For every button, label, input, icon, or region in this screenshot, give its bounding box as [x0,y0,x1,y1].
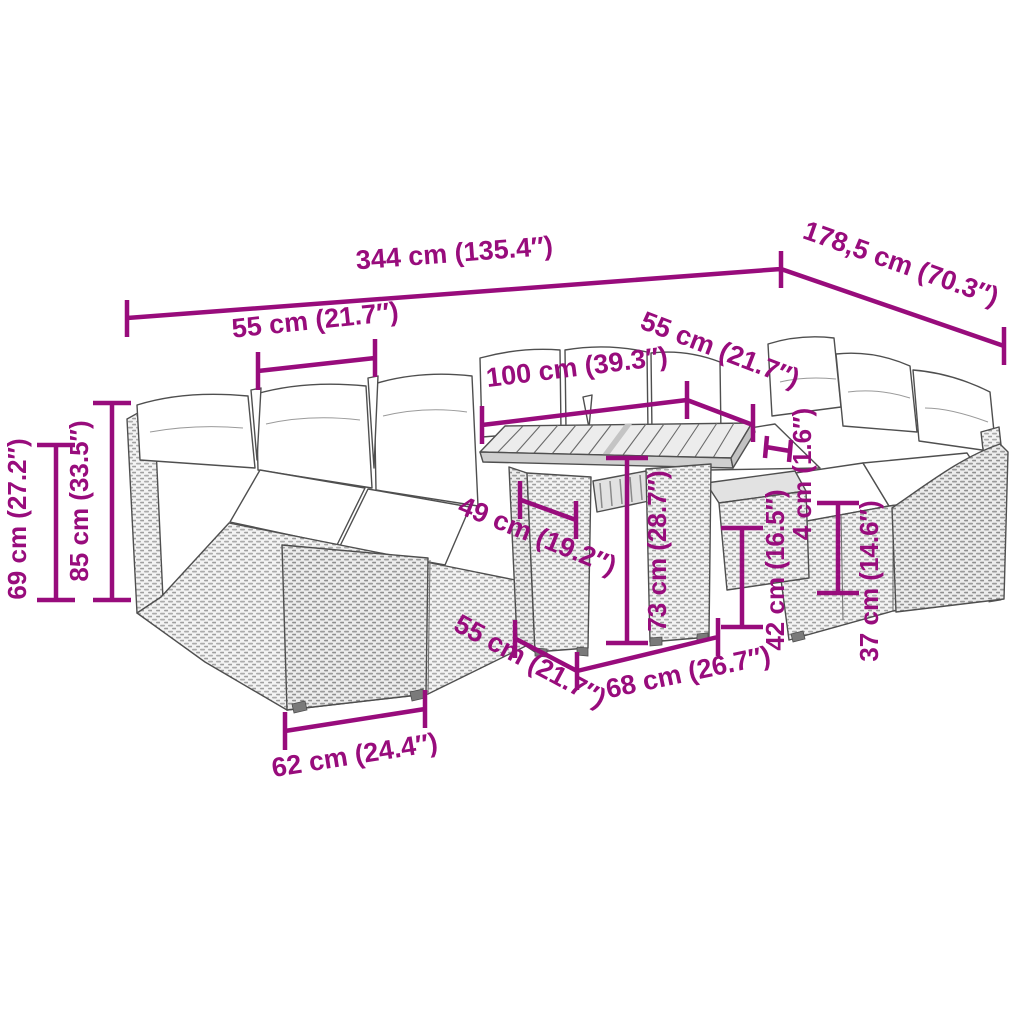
back-cushion [374,374,478,506]
dim-label-total-height: 85 cm (33.5″) [64,420,94,581]
back-cushion [836,353,917,432]
dim-label-total-width: 344 cm (135.4″) [355,231,554,276]
dimension-diagram-svg: 344 cm (135.4″) 178,5 cm (70.3″) 55 cm (… [0,0,1024,1024]
dim-label-total-depth: 178,5 cm (70.3″) [799,215,1002,312]
dim-label-table-height: 73 cm (28.7″) [642,470,672,631]
dim-line [93,403,131,600]
dim-seat-width-left: 55 cm (21.7″) [230,296,400,390]
left-front-panel [282,545,428,710]
dim-total-height: 85 cm (33.5″) [64,403,131,600]
dim-label-backrest-height: 69 cm (27.2″) [2,438,32,599]
dim-label-base-height: 37 cm (14.6″) [854,500,884,661]
dim-line [258,339,375,390]
pedestal-foot [650,637,662,646]
dim-label-seat-height: 42 cm (16.5″) [760,489,790,650]
dim-label-table-sofa-gap: 4 cm (1.6″) [787,408,817,540]
dim-label-table-width: 68 cm (26.7″) [603,640,773,704]
dim-label-end-module-width: 62 cm (24.4″) [270,727,440,783]
dimension-diagram: 344 cm (135.4″) 178,5 cm (70.3″) 55 cm (… [0,0,1024,1024]
